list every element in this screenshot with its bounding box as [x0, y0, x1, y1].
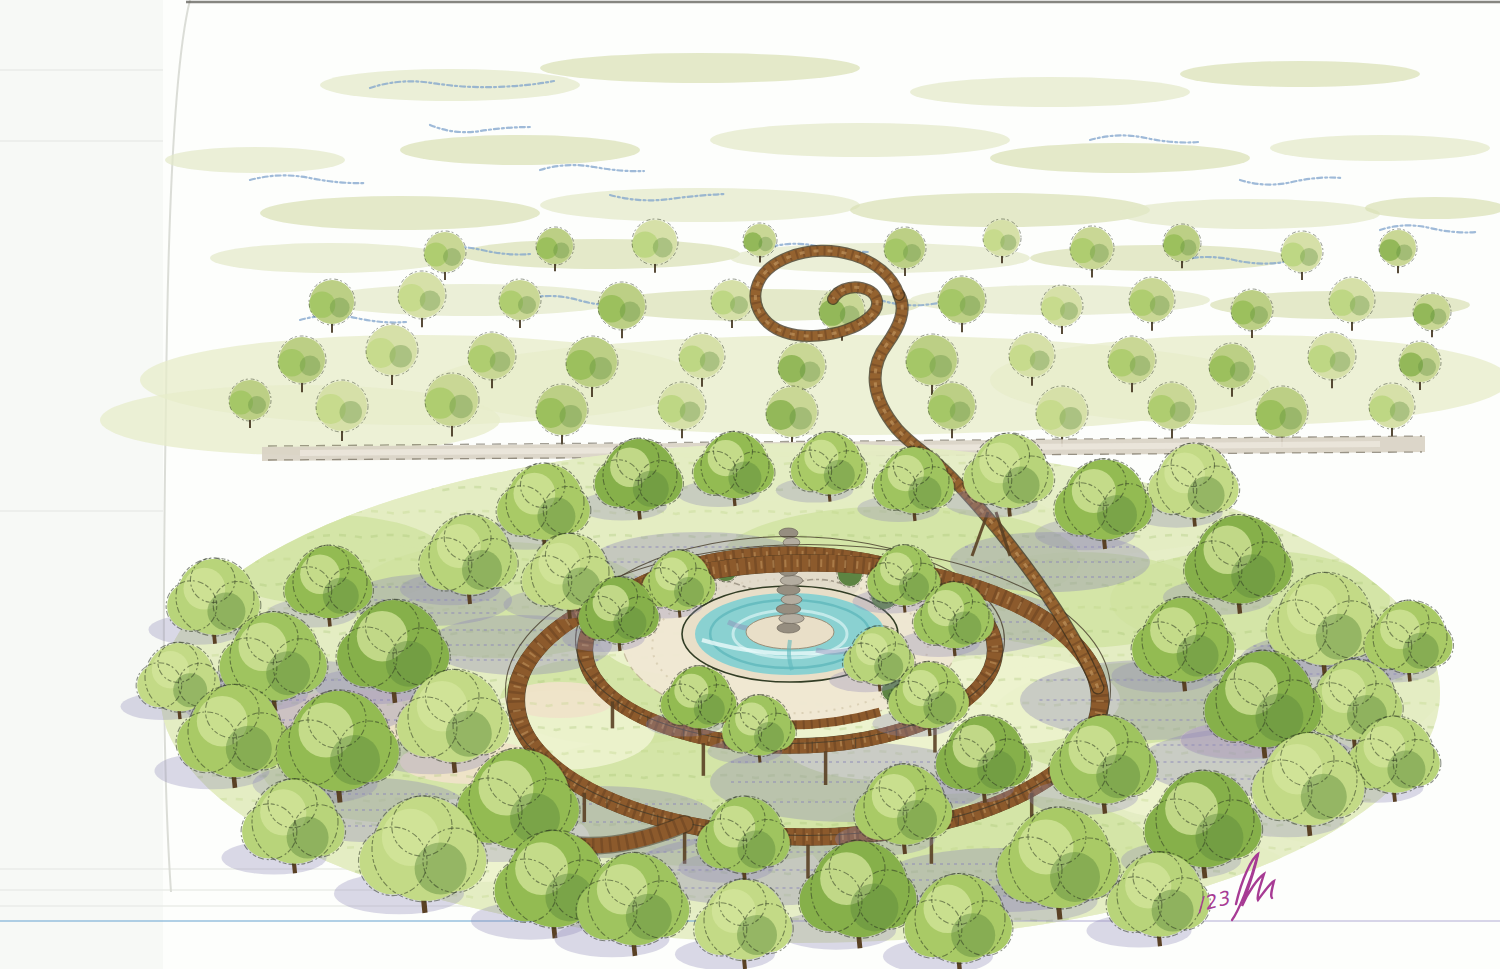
sky-wash — [1030, 245, 1290, 271]
tree-canopy-shade — [1231, 554, 1275, 598]
distant-tree-canopy-shade — [1180, 239, 1196, 255]
tree-canopy-shade — [1316, 614, 1362, 660]
sky-wash — [540, 53, 860, 83]
sky-wash — [210, 243, 450, 273]
distant-tree-canopy-shade — [443, 248, 461, 266]
sky-wash — [990, 143, 1250, 173]
distant-tree-canopy-shade — [620, 301, 641, 322]
distant-tree-canopy-shade — [1000, 234, 1016, 250]
tree-canopy-shade — [446, 711, 492, 757]
distant-tree-canopy-shade — [300, 355, 321, 376]
distant-tree-canopy-shade — [1300, 248, 1318, 266]
tree-canopy-shade — [613, 606, 646, 639]
distant-tree-canopy-shade — [490, 351, 511, 372]
distant-tree-canopy-shade — [340, 401, 363, 424]
column-stone — [777, 585, 800, 595]
distant-tree-canopy-shade — [903, 244, 921, 262]
tree-canopy-shade — [1050, 852, 1100, 902]
distant-tree-canopy-shade — [330, 298, 350, 318]
distant-tree-canopy-shade — [700, 352, 720, 372]
distant-tree-canopy-shade — [1390, 402, 1410, 422]
column-stone — [777, 623, 800, 633]
distant-tree-canopy-shade — [590, 357, 613, 380]
distant-tree-canopy-shade — [1418, 358, 1436, 376]
distant-tree-canopy-shade — [390, 345, 413, 368]
distant-tree-canopy-shade — [1170, 401, 1191, 422]
distant-tree-canopy-shade — [449, 395, 472, 418]
distant-tree-canopy-shade — [1060, 407, 1083, 430]
distant-tree-canopy-shade — [758, 237, 772, 251]
sky-wash — [260, 196, 540, 230]
sky-wash — [710, 123, 1010, 157]
distant-tree-canopy-shade — [1280, 407, 1303, 430]
sky-wash — [1180, 61, 1420, 87]
tree-canopy-shade — [226, 726, 272, 772]
distant-tree-canopy-shade — [560, 405, 583, 428]
tree-canopy-shade — [266, 651, 310, 695]
column-stone — [781, 595, 802, 605]
tree-canopy-shade — [330, 735, 380, 785]
column-stone — [779, 614, 804, 624]
distant-tree-canopy-shade — [653, 238, 673, 258]
distant-tree-canopy-shade — [553, 242, 569, 258]
distant-tree-canopy-shade — [930, 355, 953, 378]
tree-canopy-shade — [1096, 754, 1140, 798]
distant-tree-canopy-shade — [800, 361, 821, 382]
sky-wash — [1365, 197, 1500, 219]
distant-tree-canopy-shade — [420, 290, 441, 311]
distant-tree-canopy-shade — [790, 407, 813, 430]
tree-canopy-shade — [948, 611, 981, 644]
paper-left-strip — [0, 0, 163, 969]
distant-tree-canopy-shade — [1130, 355, 1151, 376]
tree-canopy-shade — [923, 691, 956, 724]
distant-tree-canopy-shade — [1330, 351, 1351, 372]
distant-tree-canopy-shade — [1150, 296, 1170, 316]
sky-wash — [400, 135, 640, 165]
tree-canopy-shade — [626, 894, 672, 940]
distant-tree-canopy-shade — [248, 396, 266, 414]
sky-wash — [165, 147, 345, 173]
column-stone — [783, 538, 800, 548]
distant-tree-canopy-shade — [1430, 308, 1446, 324]
distant-tree-canopy-shade — [680, 401, 701, 422]
distant-tree-canopy-shade — [950, 401, 971, 422]
sky-wash — [540, 188, 860, 222]
distant-tree-canopy-shade — [1030, 351, 1050, 371]
distant-tree-canopy-shade — [1350, 296, 1370, 316]
sky-wash — [1270, 135, 1490, 161]
sky-wash — [1120, 199, 1380, 229]
distant-tree-canopy-shade — [1060, 302, 1078, 320]
sketch-canvas — [0, 0, 1500, 969]
tree-canopy-shade — [415, 843, 467, 895]
distant-tree-canopy-shade — [1090, 244, 1109, 263]
distant-tree-canopy-shade — [1396, 244, 1412, 260]
tree-canopy-shade — [1301, 774, 1347, 820]
distant-tree-canopy-shade — [1230, 362, 1250, 382]
watercolor-park-sketch: /23 — [0, 0, 1500, 969]
distant-tree-canopy-shade — [1250, 306, 1268, 324]
sky-wash — [910, 77, 1190, 107]
distant-tree-canopy-shade — [730, 296, 748, 314]
tree-canopy-shade — [951, 913, 995, 957]
tree-canopy-shade — [908, 476, 941, 509]
column-stone — [776, 604, 801, 614]
distant-tree-canopy-shade — [960, 295, 981, 316]
distant-tree-canopy-shade — [518, 296, 536, 314]
column-stone — [780, 576, 803, 586]
tree-canopy-shade — [728, 461, 761, 494]
tree-canopy-shade — [386, 641, 432, 687]
